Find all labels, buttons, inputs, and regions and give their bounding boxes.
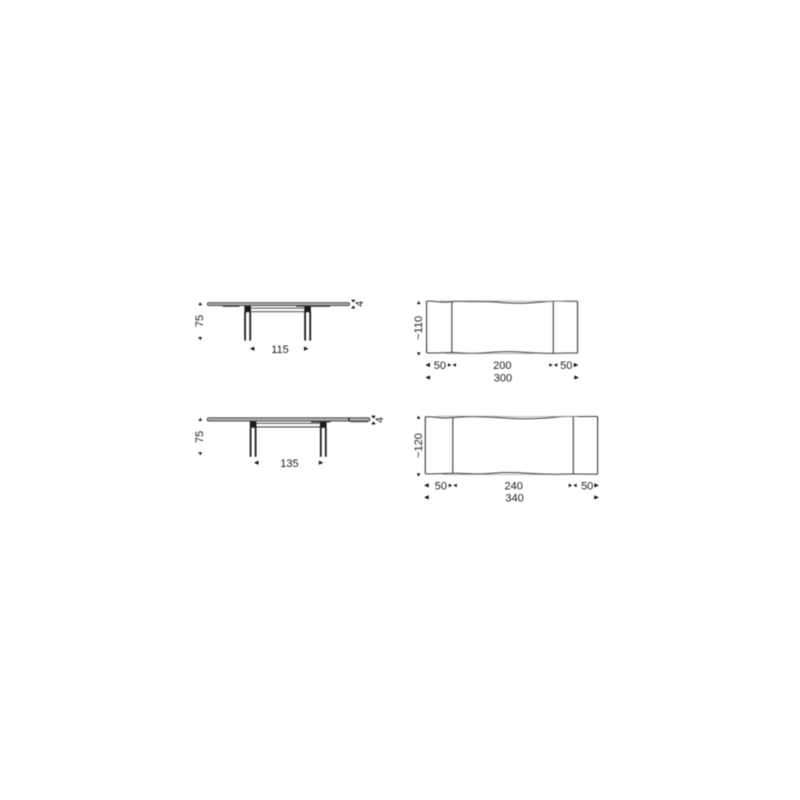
svg-text:~110: ~110 [413, 316, 425, 340]
svg-text:200: 200 [493, 360, 511, 372]
svg-text:340: 340 [505, 492, 523, 504]
svg-text:75: 75 [194, 315, 206, 327]
svg-text:300: 300 [494, 372, 512, 384]
svg-text:75: 75 [194, 431, 206, 443]
svg-text:~120: ~120 [413, 433, 425, 458]
svg-text:50: 50 [435, 480, 447, 492]
svg-text:240: 240 [505, 480, 523, 492]
svg-text:50: 50 [581, 480, 593, 492]
svg-text:115: 115 [271, 344, 289, 356]
svg-text:4: 4 [354, 301, 366, 307]
svg-text:135: 135 [280, 458, 298, 470]
svg-text:50: 50 [434, 360, 446, 372]
svg-text:4: 4 [374, 417, 386, 423]
svg-text:50: 50 [560, 360, 572, 372]
